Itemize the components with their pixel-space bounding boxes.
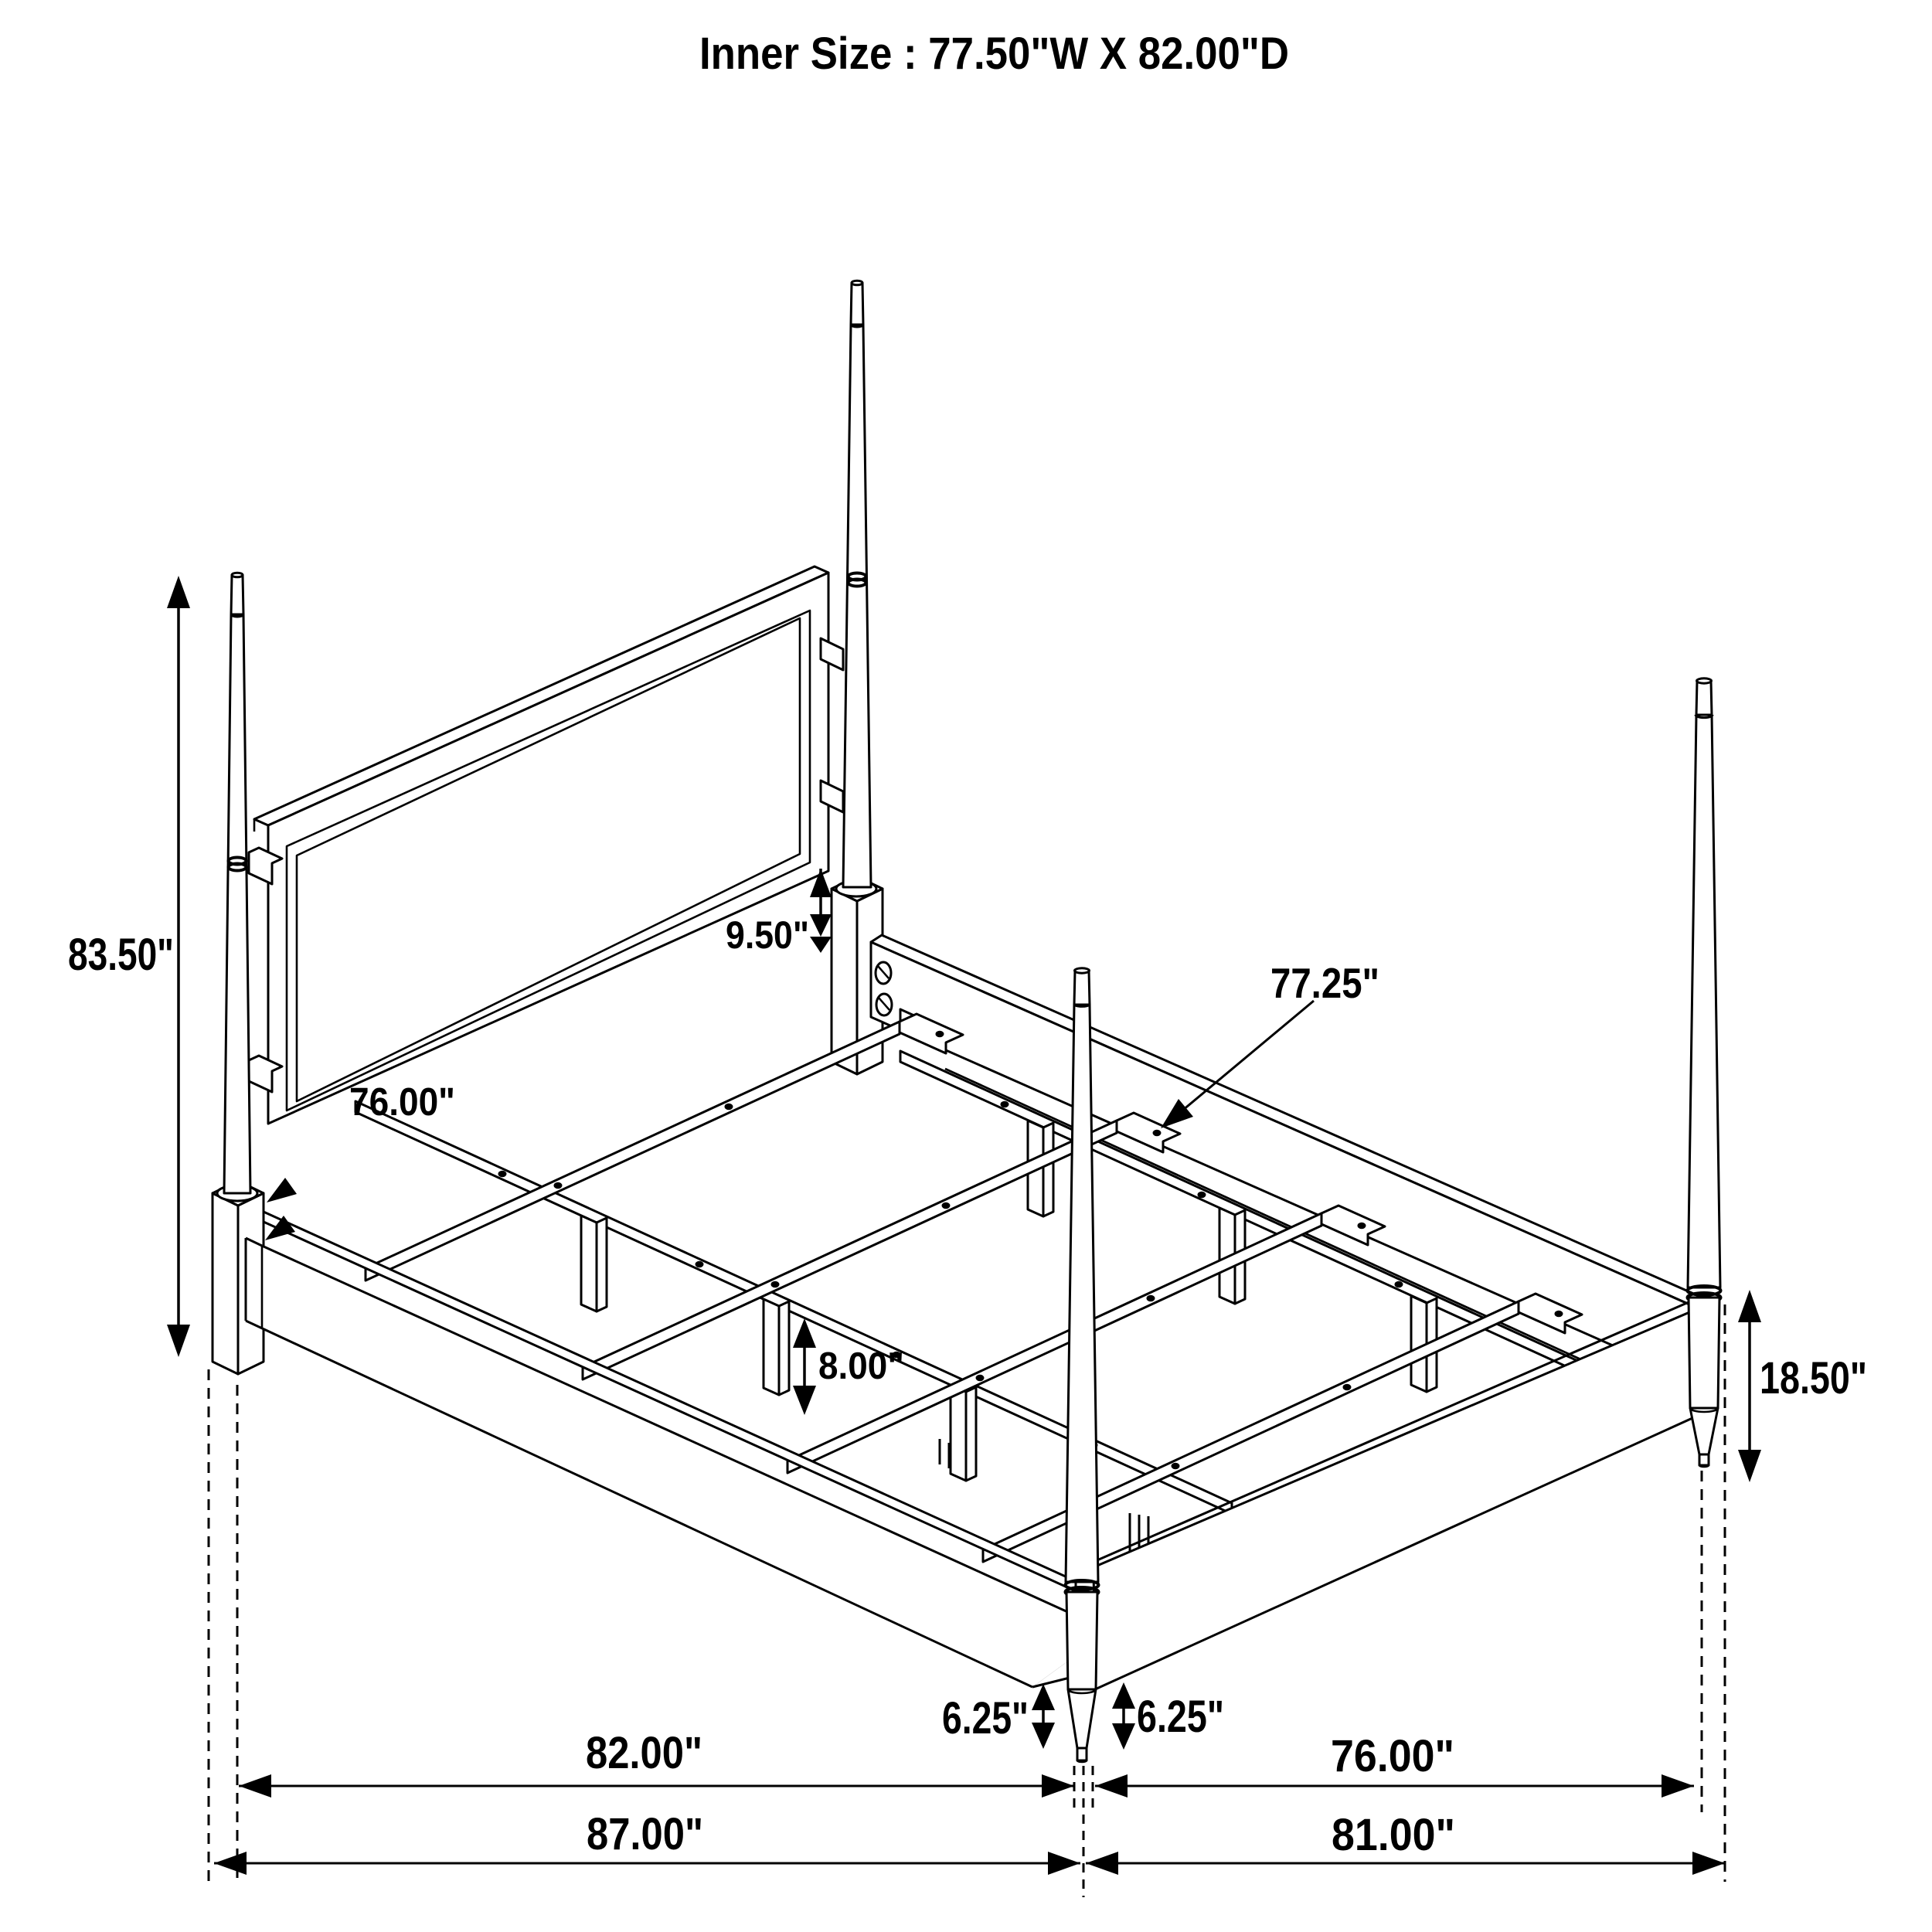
svg-text:82.00": 82.00" bbox=[586, 1728, 702, 1778]
svg-text:Inner Size : 77.50"W X 82.00"D: Inner Size : 77.50"W X 82.00"D bbox=[699, 29, 1289, 79]
svg-text:6.25": 6.25" bbox=[942, 1693, 1029, 1743]
svg-text:8.00": 8.00" bbox=[818, 1345, 904, 1387]
svg-text:77.25": 77.25" bbox=[1270, 959, 1379, 1007]
svg-text:76.00": 76.00" bbox=[349, 1080, 455, 1124]
svg-text:18.50": 18.50" bbox=[1760, 1353, 1867, 1403]
svg-text:81.00": 81.00" bbox=[1332, 1810, 1455, 1860]
svg-text:6.25": 6.25" bbox=[1137, 1692, 1224, 1742]
svg-text:9.50": 9.50" bbox=[726, 913, 809, 957]
svg-text:83.50": 83.50" bbox=[68, 930, 174, 980]
svg-text:76.00": 76.00" bbox=[1331, 1731, 1454, 1781]
svg-text:87.00": 87.00" bbox=[587, 1809, 703, 1859]
